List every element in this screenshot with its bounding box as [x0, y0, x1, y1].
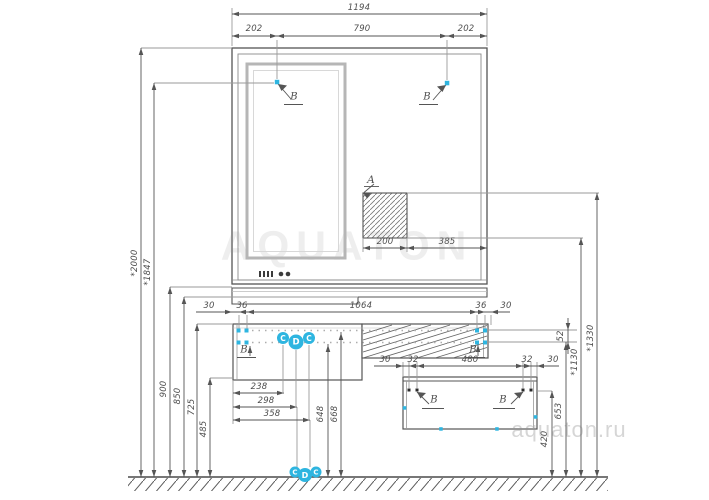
dim-358: 358: [264, 409, 281, 419]
dim-left-2000: *2000: [130, 250, 140, 277]
dim-right-420: 420: [540, 431, 550, 448]
dim-left-900: 900: [159, 381, 169, 398]
dim-cab-30r: 30: [547, 355, 558, 365]
dim-cab-480: 480: [462, 355, 479, 365]
callout-b-vanity-left: B: [240, 345, 248, 356]
dim-668: 668: [330, 406, 340, 423]
marker-c-left: C: [277, 332, 289, 344]
dim-left-725: 725: [187, 399, 197, 416]
callout-b-cabinet-left: B: [430, 395, 438, 406]
dim-right-1130: *1130: [570, 349, 580, 376]
lower-cabinet: [403, 377, 537, 429]
dim-right-653: 653: [554, 403, 564, 420]
dim-right-52: 52: [556, 330, 566, 341]
marker-d-mid: D: [289, 335, 304, 350]
dim-cab-32l: 32: [407, 355, 418, 365]
drawing-linework: [0, 0, 709, 500]
vanity-cabinet: [233, 324, 488, 380]
marker-c-floor-right: C: [311, 467, 322, 478]
callout-b-cabinet-right: B: [499, 395, 507, 406]
dim-niche-200: 200: [377, 237, 394, 247]
dim-238: 238: [251, 382, 268, 392]
callout-b-vanity-right: B: [469, 345, 477, 356]
dim-648: 648: [316, 406, 326, 423]
dim-top-left: 202: [246, 24, 263, 34]
dim-top-overall: 1194: [348, 3, 370, 13]
dim-van-30r: 30: [500, 301, 511, 311]
dim-van-1064: 1064: [350, 301, 372, 311]
dim-left-1847: *1847: [143, 259, 153, 286]
callout-b-mirror-left: B: [290, 92, 298, 103]
dim-van-30l: 30: [203, 301, 214, 311]
floor: [128, 477, 608, 491]
dim-van-36r: 36: [475, 301, 486, 311]
callout-niche-a: A: [367, 174, 375, 186]
dim-right-1330: *1330: [586, 325, 596, 352]
dim-top-mid: 790: [354, 24, 371, 34]
dim-van-36l: 36: [236, 301, 247, 311]
dim-niche-385: 385: [439, 237, 456, 247]
dim-cab-30l: 30: [379, 355, 390, 365]
dim-left-485: 485: [199, 421, 209, 438]
installation-drawing: AQUATON aquaton.ru 1194 202 790 202 *200…: [0, 0, 709, 500]
dim-cab-32r: 32: [521, 355, 532, 365]
callout-b-mirror-right: B: [423, 92, 431, 103]
dim-top-right: 202: [458, 24, 475, 34]
dim-left-850: 850: [173, 388, 183, 405]
marker-c-right: C: [303, 332, 315, 344]
dim-298: 298: [258, 396, 275, 406]
